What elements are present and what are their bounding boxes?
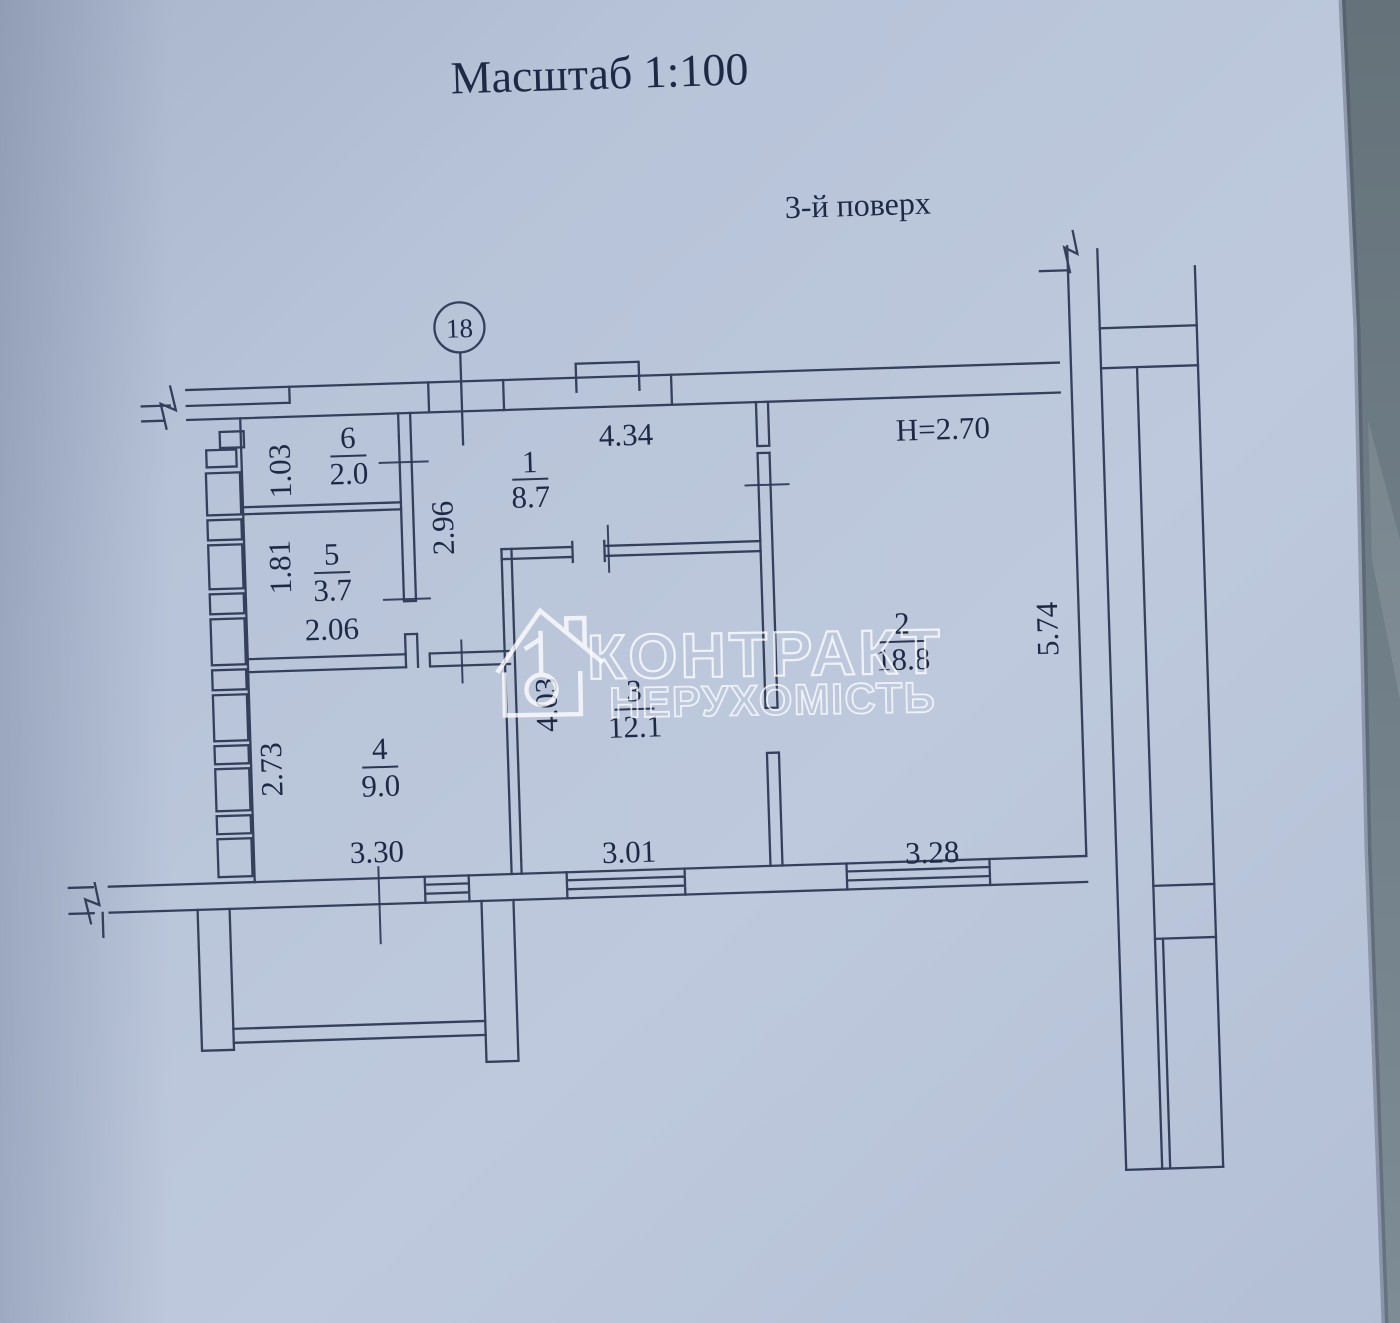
room-6-number: 6 (340, 420, 357, 455)
room-6-area: 2.0 (329, 455, 369, 491)
right-wall-stub (1040, 270, 1068, 271)
height-note: H=2.70 (895, 410, 990, 448)
dim-room5-depth: 1.81 (262, 539, 299, 594)
dim-hall-width: 4.34 (598, 416, 654, 453)
dim-room2-depth: 5.74 (1029, 601, 1066, 657)
watermark-line2: НЕРУХОМІСТЬ (609, 674, 937, 728)
dim-room5-width: 2.06 (304, 611, 359, 648)
dim-room4-depth: 2.73 (253, 742, 290, 797)
scale-title: Масштаб 1:100 (450, 43, 749, 103)
column-marker-number: 18 (446, 313, 474, 344)
dim-room6-depth: 1.03 (262, 443, 299, 498)
scanned-floor-plan-photo: Масштаб 1:100 3-й поверх (0, 0, 1400, 1323)
dim-room4-width: 3.30 (349, 833, 404, 870)
tick-room2-wall (745, 484, 790, 485)
floor-label: 3-й поверх (784, 185, 931, 226)
dim-hall-depth: 2.96 (424, 500, 461, 555)
room-5-number: 5 (323, 536, 340, 571)
tick-room4-top (461, 639, 462, 683)
dim-room2-width: 3.28 (904, 834, 959, 871)
room-1-area: 8.7 (511, 479, 551, 515)
room-4-area: 9.0 (361, 767, 401, 803)
paper-left-shadow (0, 0, 170, 1323)
room-1-number: 1 (521, 444, 538, 479)
floor-plan-canvas: Масштаб 1:100 3-й поверх (0, 0, 1400, 1323)
room-4-number: 4 (371, 731, 388, 766)
dim-room3-width: 3.01 (601, 833, 656, 870)
room-5-area: 3.7 (313, 572, 353, 608)
